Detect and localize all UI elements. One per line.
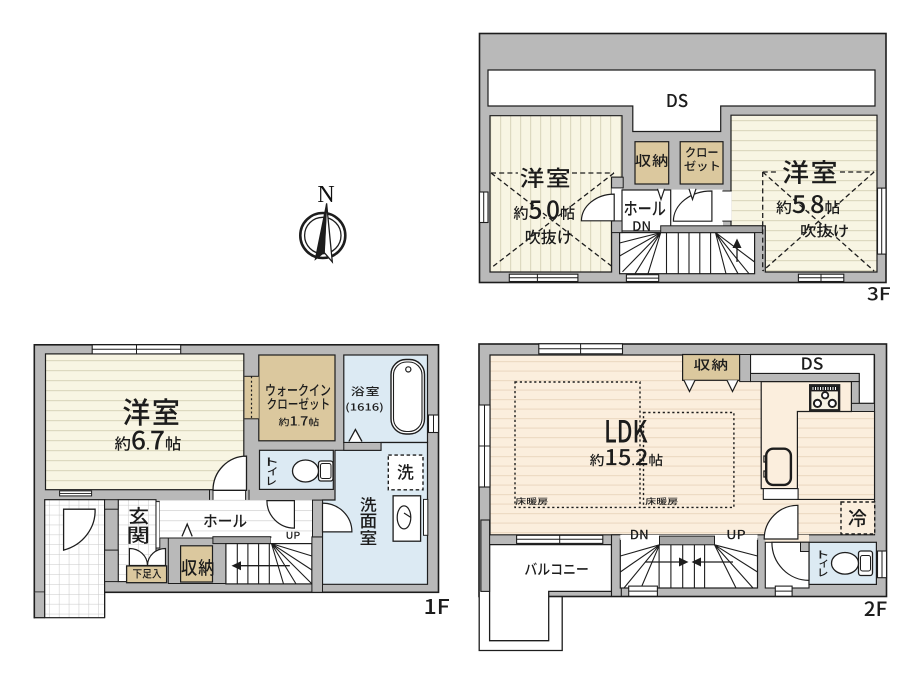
svg-text:N: N xyxy=(317,182,334,208)
